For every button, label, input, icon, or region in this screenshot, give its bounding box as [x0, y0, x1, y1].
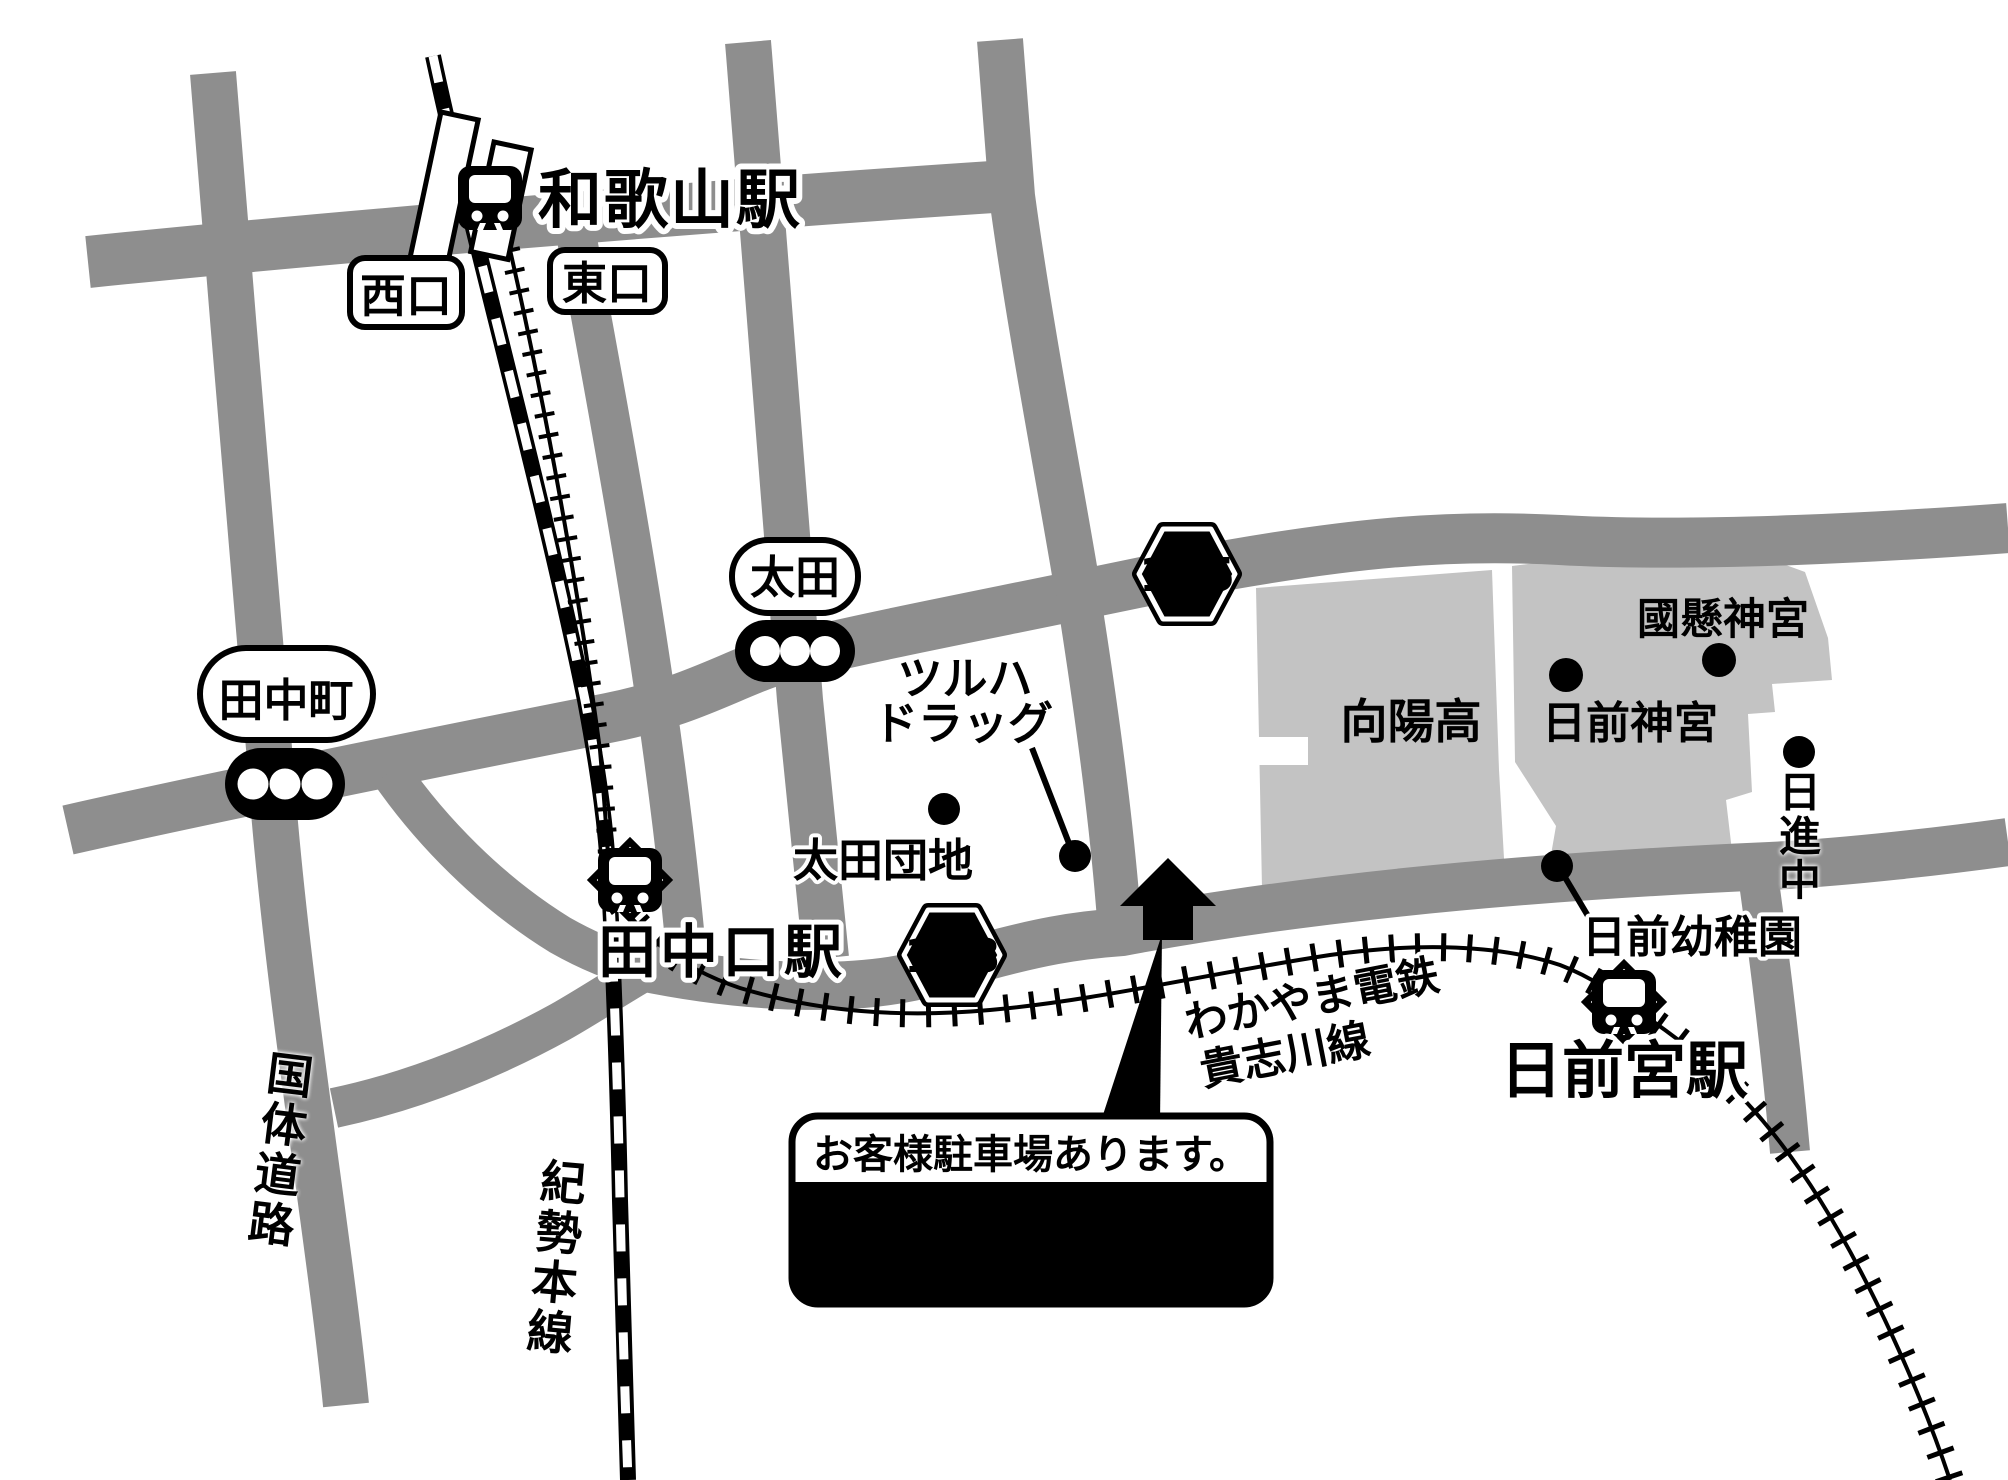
train-icon-tanakaguchi	[598, 848, 662, 912]
map-canvas: 和歌山駅 西口 東口 田中町 太田 145 138	[0, 0, 2008, 1480]
ota-label: 太田	[750, 551, 840, 604]
nisshin-jhs-dot	[1783, 736, 1815, 768]
nichizengu-station-name: 日前宮駅	[1500, 1034, 1748, 1107]
wakayama-station-name: 和歌山駅	[538, 164, 802, 238]
route-badge-145: 145	[1139, 529, 1235, 619]
tanakaguchi-station-name: 田中口駅	[598, 918, 846, 986]
east-exit-sign: 東口	[550, 250, 665, 312]
train-icon-wakayama	[458, 166, 522, 230]
kunikakasu-shrine-dot	[1702, 643, 1736, 677]
signal-ota: 太田	[732, 540, 858, 682]
access-map: 和歌山駅 西口 東口 田中町 太田 145 138	[0, 0, 2008, 1480]
nisshin-jhs-label: 日進中	[1774, 770, 1819, 902]
west-exit-label: 西口	[360, 269, 452, 323]
route-badge-138: 138	[904, 910, 1000, 1000]
road-southwest-connector	[334, 972, 643, 1108]
hinokuma-shrine-label: 日前神宮	[1542, 698, 1718, 749]
parking-note: お客様駐車場あります。	[813, 1132, 1249, 1178]
road-vertical-west	[572, 212, 684, 930]
kindergarten-label: 日前幼稚園	[1582, 912, 1802, 963]
train-icon-nichizengu	[1592, 970, 1656, 1034]
road-nichizengu-vertical	[1757, 868, 1790, 1152]
tsuruha-leader-line	[1032, 748, 1070, 846]
route-138-number: 138	[904, 929, 1000, 983]
nichizengu-station: 日前宮駅	[1500, 964, 1748, 1107]
west-exit-sign: 西口	[350, 258, 462, 327]
ota-danchi-dot	[928, 793, 960, 825]
road-northeast-diagonal	[1000, 40, 1078, 592]
route-145-number: 145	[1139, 548, 1235, 602]
ota-danchi-label: 太田団地	[793, 834, 973, 887]
road-store-vertical	[1078, 592, 1120, 932]
tsuruha-label-line2: ドラッグ	[873, 697, 1053, 750]
hinokuma-shrine-dot	[1549, 658, 1583, 692]
tsuruha-dot	[1059, 840, 1091, 872]
east-exit-label: 東口	[562, 257, 652, 310]
callout-pointer	[1100, 934, 1162, 1124]
tanakamachi-label: 田中町	[218, 674, 353, 727]
kunikakasu-shrine-label: 國懸神宮	[1637, 595, 1809, 645]
koyo-high-label: 向陽高	[1341, 695, 1482, 750]
store-name: 和歌山太田店	[803, 1201, 1259, 1290]
campus-side-street-notch	[1242, 737, 1308, 765]
